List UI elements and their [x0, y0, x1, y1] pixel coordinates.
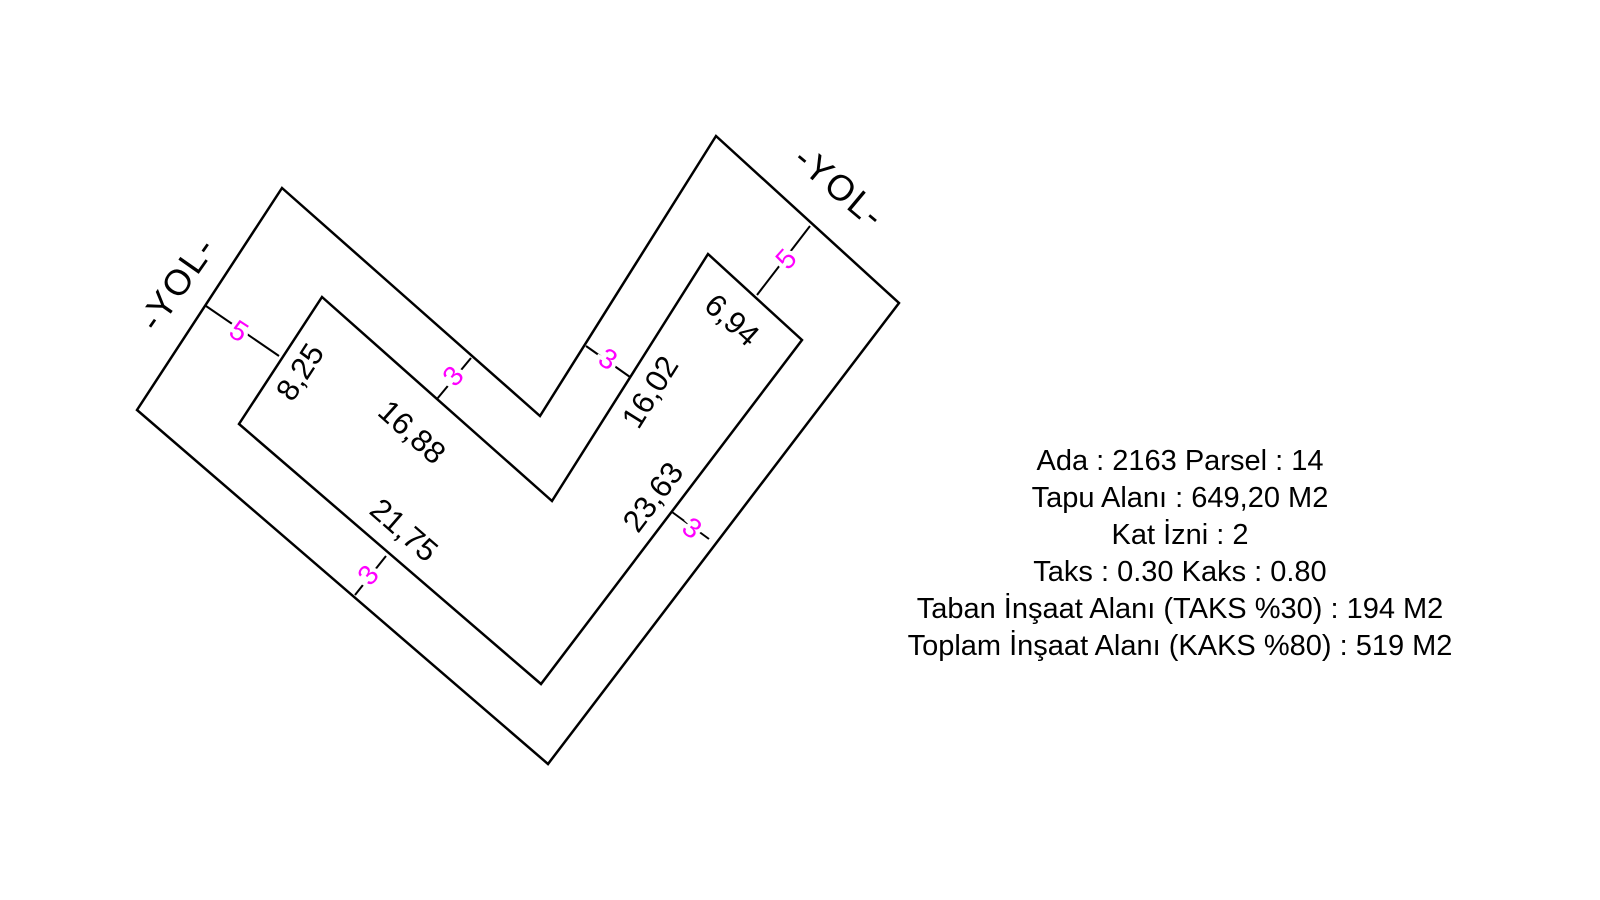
info-line-kat-izni: Kat İzni : 2	[880, 517, 1480, 554]
setback-distance-label: 3	[676, 511, 707, 545]
setback-distance-label: 5	[224, 314, 254, 348]
setback-distance-label: 3	[593, 342, 623, 377]
edge-length-label: 8,25	[269, 337, 331, 407]
info-line-taban-insaat: Taban İnşaat Alanı (TAKS %30) : 194 M2	[880, 591, 1480, 628]
edge-length-label: 23,63	[616, 455, 691, 538]
edge-length-label: 16,02	[615, 350, 686, 434]
boundary-polygons	[137, 136, 899, 764]
parcel-info-block: Ada : 2163 Parsel : 14 Tapu Alanı : 649,…	[880, 443, 1480, 665]
cadastral-sketch-page: 553333 8,2516,8816,026,9421,7523,63 -YOL…	[0, 0, 1600, 900]
parcel-outer-boundary	[137, 136, 899, 764]
road-label: -YOL-	[786, 137, 894, 237]
info-line-taks-kaks: Taks : 0.30 Kaks : 0.80	[880, 554, 1480, 591]
setback-distance-label: 5	[769, 243, 802, 275]
info-line-tapu-alani: Tapu Alanı : 649,20 M2	[880, 480, 1480, 517]
road-labels: -YOL--YOL-	[130, 137, 894, 338]
road-label: -YOL-	[130, 228, 224, 338]
info-line-toplam-insaat: Toplam İnşaat Alanı (KAKS %80) : 519 M2	[880, 628, 1480, 665]
edge-length-label: 16,88	[371, 393, 452, 471]
edge-length-label: 21,75	[363, 491, 445, 568]
info-line-ada-parsel: Ada : 2163 Parsel : 14	[880, 443, 1480, 480]
